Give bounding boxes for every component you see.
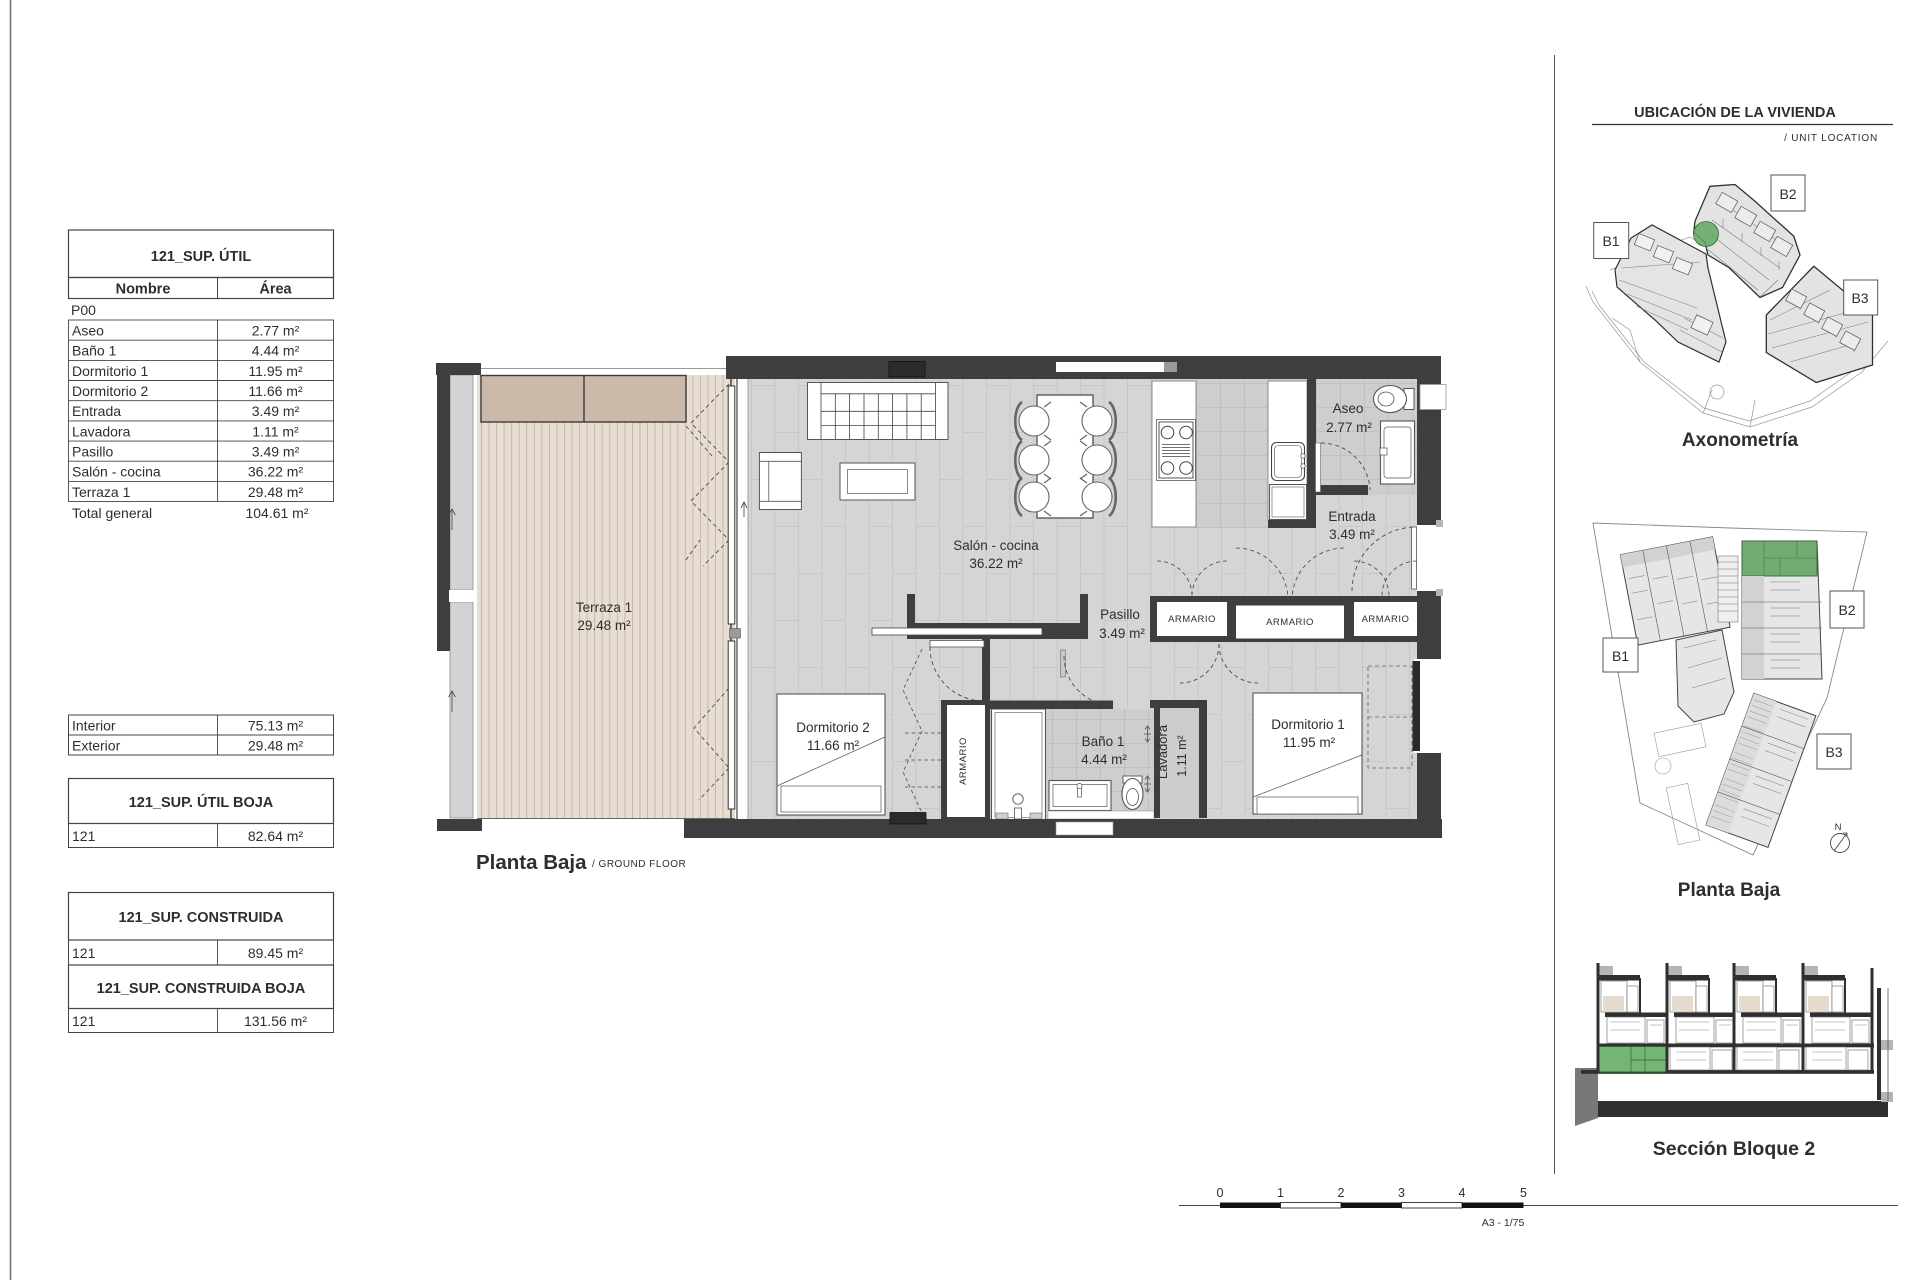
svg-text:36.22 m²: 36.22 m² xyxy=(969,556,1023,571)
svg-text:11.95 m²: 11.95 m² xyxy=(248,363,303,379)
svg-text:Dormitorio 2: Dormitorio 2 xyxy=(72,383,148,399)
svg-text:B2: B2 xyxy=(1779,186,1796,202)
svg-text:B2: B2 xyxy=(1838,602,1855,618)
svg-text:Aseo: Aseo xyxy=(72,323,104,339)
svg-text:121_SUP. CONSTRUIDA BOJA: 121_SUP. CONSTRUIDA BOJA xyxy=(97,981,306,997)
svg-text:B3: B3 xyxy=(1825,744,1842,760)
svg-text:1: 1 xyxy=(1277,1186,1284,1200)
svg-text:A3 - 1/75: A3 - 1/75 xyxy=(1482,1217,1525,1229)
svg-text:82.64 m²: 82.64 m² xyxy=(248,828,304,844)
svg-text:Axonometría: Axonometría xyxy=(1682,430,1799,451)
svg-text:Nombre: Nombre xyxy=(116,282,171,298)
svg-text:121_SUP. ÚTIL: 121_SUP. ÚTIL xyxy=(151,247,252,265)
svg-text:Terraza 1: Terraza 1 xyxy=(576,600,632,615)
svg-text:Dormitorio 1: Dormitorio 1 xyxy=(72,363,148,379)
svg-text:3: 3 xyxy=(1398,1186,1405,1200)
svg-text:Dormitorio 1: Dormitorio 1 xyxy=(1271,717,1345,732)
svg-text:Dormitorio 2: Dormitorio 2 xyxy=(796,720,870,735)
svg-text:29.48 m²: 29.48 m² xyxy=(577,618,631,633)
svg-text:Exterior: Exterior xyxy=(72,738,121,754)
svg-text:0: 0 xyxy=(1217,1186,1224,1200)
svg-text:B1: B1 xyxy=(1602,233,1619,249)
svg-text:Entrada: Entrada xyxy=(1328,509,1376,524)
svg-text:UBICACIÓN DE LA VIVIENDA: UBICACIÓN DE LA VIVIENDA xyxy=(1634,103,1836,121)
svg-text:2: 2 xyxy=(1338,1186,1345,1200)
svg-text:ARMARIO: ARMARIO xyxy=(1362,614,1410,625)
svg-text:Planta Baja: Planta Baja xyxy=(1678,880,1781,901)
svg-text:/ UNIT LOCATION: / UNIT LOCATION xyxy=(1784,133,1878,144)
svg-text:B3: B3 xyxy=(1851,290,1868,306)
svg-text:Terraza 1: Terraza 1 xyxy=(72,484,131,500)
svg-text:4.44 m²: 4.44 m² xyxy=(252,343,300,359)
svg-text:Baño 1: Baño 1 xyxy=(72,343,117,359)
svg-text:11.95 m²: 11.95 m² xyxy=(1283,735,1336,750)
svg-text:Aseo: Aseo xyxy=(1333,401,1364,416)
svg-text:4.44 m²: 4.44 m² xyxy=(1081,752,1127,767)
svg-text:P00: P00 xyxy=(71,302,96,318)
svg-text:Pasillo: Pasillo xyxy=(72,444,113,460)
svg-text:121_SUP. CONSTRUIDA: 121_SUP. CONSTRUIDA xyxy=(119,910,284,926)
svg-text:3.49 m²: 3.49 m² xyxy=(252,403,300,419)
svg-text:3.49 m²: 3.49 m² xyxy=(1099,626,1145,641)
svg-text:121: 121 xyxy=(72,1013,96,1029)
svg-text:Lavadora: Lavadora xyxy=(1155,724,1170,779)
svg-text:Total general: Total general xyxy=(72,505,152,521)
svg-text:Interior: Interior xyxy=(72,718,116,734)
svg-text:2.77 m²: 2.77 m² xyxy=(1326,420,1372,435)
svg-text:Pasillo: Pasillo xyxy=(1100,607,1140,622)
svg-text:ARMARIO: ARMARIO xyxy=(958,737,969,785)
svg-text:36.22 m²: 36.22 m² xyxy=(248,464,304,480)
svg-text:89.45 m²: 89.45 m² xyxy=(248,945,304,961)
svg-text:ARMARIO: ARMARIO xyxy=(1168,614,1216,625)
svg-text:104.61 m²: 104.61 m² xyxy=(245,505,308,521)
svg-text:Área: Área xyxy=(259,281,292,298)
svg-text:121_SUP. ÚTIL BOJA: 121_SUP. ÚTIL BOJA xyxy=(129,793,274,811)
svg-text:1.11 m²: 1.11 m² xyxy=(1175,735,1189,776)
svg-text:2.77 m²: 2.77 m² xyxy=(252,323,300,339)
svg-text:N: N xyxy=(1835,822,1842,833)
svg-text:131.56 m²: 131.56 m² xyxy=(244,1013,307,1029)
svg-text:Sección Bloque 2: Sección Bloque 2 xyxy=(1653,1138,1816,1160)
svg-text:75.13 m²: 75.13 m² xyxy=(248,718,304,734)
svg-text:Lavadora: Lavadora xyxy=(72,423,131,439)
svg-text:29.48 m²: 29.48 m² xyxy=(248,738,304,754)
svg-text:29.48 m²: 29.48 m² xyxy=(248,484,304,500)
svg-text:Salón - cocina: Salón - cocina xyxy=(72,464,161,480)
svg-text:121: 121 xyxy=(72,945,96,961)
svg-text:11.66 m²: 11.66 m² xyxy=(248,383,303,399)
svg-text:1.11 m²: 1.11 m² xyxy=(252,423,299,439)
svg-text:121: 121 xyxy=(72,828,96,844)
svg-text:B1: B1 xyxy=(1612,648,1629,664)
svg-text:3.49 m²: 3.49 m² xyxy=(252,444,300,460)
svg-text:Entrada: Entrada xyxy=(72,403,121,419)
svg-text:/ GROUND FLOOR: / GROUND FLOOR xyxy=(592,859,686,870)
svg-text:4: 4 xyxy=(1459,1186,1466,1200)
svg-text:Salón - cocina: Salón - cocina xyxy=(953,538,1039,553)
svg-text:Planta Baja: Planta Baja xyxy=(476,851,587,874)
svg-text:5: 5 xyxy=(1520,1186,1527,1200)
svg-text:11.66 m²: 11.66 m² xyxy=(807,738,860,753)
svg-text:Baño 1: Baño 1 xyxy=(1082,734,1125,749)
svg-text:3.49 m²: 3.49 m² xyxy=(1329,527,1375,542)
svg-text:ARMARIO: ARMARIO xyxy=(1266,617,1314,628)
